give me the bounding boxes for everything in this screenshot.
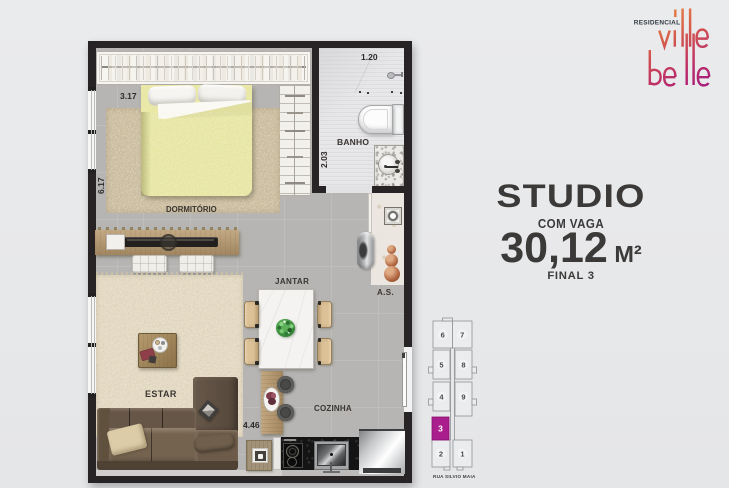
- svg-text:6: 6: [441, 330, 445, 339]
- svg-text:1: 1: [460, 449, 464, 458]
- svg-text:9: 9: [461, 392, 465, 401]
- svg-text:2: 2: [439, 449, 443, 458]
- svg-text:8: 8: [461, 360, 465, 369]
- svg-text:3: 3: [438, 424, 443, 434]
- svg-text:RESIDENCIAL: RESIDENCIAL: [634, 20, 680, 27]
- svg-text:RUA SILVIO MAIA: RUA SILVIO MAIA: [433, 474, 476, 479]
- svg-text:5: 5: [439, 360, 443, 369]
- svg-text:7: 7: [460, 330, 464, 339]
